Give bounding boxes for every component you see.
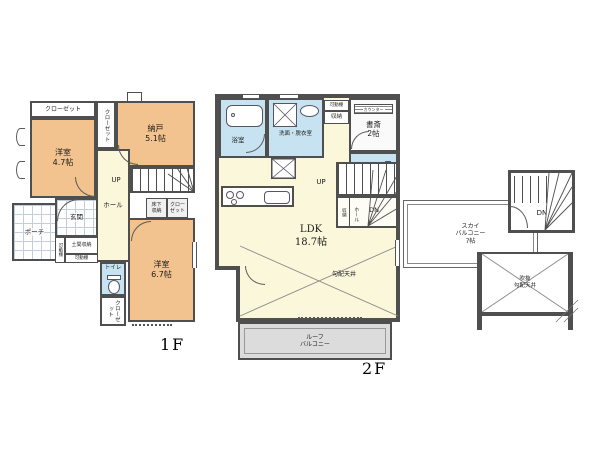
- porch: ポーチ: [12, 203, 57, 261]
- floor-plan-canvas: クローゼット クローゼット 洋室 4.7帖 納戸 5.1帖 ホール UP 床下 …: [0, 0, 600, 449]
- counter-label: カウンター: [363, 107, 385, 112]
- storage-2f-top: 収納: [324, 111, 349, 124]
- toilet-1f: トイレ: [100, 262, 126, 296]
- storage-2f-top-label: 収納: [331, 114, 342, 121]
- counter: カウンター: [354, 104, 393, 114]
- bedroom-4-7-label: 洋室 4.7帖: [53, 148, 74, 168]
- closet-1f-mid-label: クロー ゼット: [170, 202, 185, 215]
- roof-balcony-label: ルーフ バルコニー: [300, 334, 330, 349]
- storage-under-stairs-label: 収納: [341, 208, 347, 217]
- floor-2f-label: 2F: [362, 359, 387, 378]
- stove-burner-icon: [231, 199, 237, 205]
- stairs-2f-winder-icon: [368, 170, 398, 226]
- bathtub-drain-icon: [231, 113, 235, 117]
- closet-1f-top-label: クローゼット: [45, 106, 81, 114]
- doma-storage-label: 土間収納: [71, 242, 91, 248]
- hall-1f-label: ホール: [103, 201, 123, 209]
- sky-balcony-label: スカイ バルコニー 7帖: [456, 223, 486, 246]
- movable-shelf-2f-label: 可動棚: [330, 103, 344, 109]
- movable-shelf-bottom: 可動棚: [65, 254, 98, 263]
- underfloor-storage: 床下 収納: [146, 198, 167, 218]
- window-icon: [395, 240, 400, 266]
- up-1f-label: UP: [104, 176, 128, 185]
- movable-shelf-left: 可動棚: [55, 237, 65, 263]
- void-label: 吹抜 勾配天井: [514, 276, 536, 290]
- movable-shelf-2f: 可動棚: [324, 100, 349, 111]
- hall-1f: ホール: [96, 149, 130, 262]
- window-icon: [192, 242, 197, 268]
- window-icon: [280, 94, 298, 99]
- storage-x-icon: [271, 158, 296, 179]
- sloped-ceiling-label: 勾配天井: [318, 271, 370, 279]
- roof-balcony: ルーフ バルコニー: [238, 322, 392, 360]
- toilet-1f-bowl-icon: [108, 280, 120, 294]
- stove-burner-icon: [226, 191, 234, 199]
- movable-shelf-left-label: 可動棚: [57, 243, 63, 257]
- storeroom-5-1-label: 納戸 5.1帖: [145, 124, 166, 144]
- kitchen-counter: [221, 186, 294, 207]
- closet-1f-mid: クロー ゼット: [167, 198, 188, 218]
- washroom-label: 洗面・脱衣室: [269, 131, 322, 138]
- corner-hatch-icon: [556, 298, 578, 322]
- up-2f-label: UP: [309, 178, 333, 187]
- sliding-window-dotted-icon: [298, 317, 362, 319]
- movable-shelf-bottom-label: 可動棚: [75, 256, 89, 262]
- stairs-1f-winder-icon: [168, 168, 194, 192]
- hall-2f-label: ホール: [353, 201, 359, 227]
- bathroom: 浴室: [219, 98, 267, 158]
- window-arc-icon: [16, 128, 25, 146]
- void-wall-leg: [477, 314, 482, 330]
- closet-1f-bottom-label: クローゼット: [106, 298, 120, 324]
- window-arc-icon: [16, 161, 25, 179]
- bedroom-6-7-label: 洋室 6.7帖: [151, 260, 172, 280]
- underfloor-storage-label: 床下 収納: [151, 202, 161, 215]
- toilet-1f-label: トイレ: [102, 265, 124, 272]
- stove-burner-icon: [236, 191, 244, 199]
- kitchen-sink-icon: [264, 191, 290, 204]
- porch-label: ポーチ: [25, 228, 45, 236]
- storage-under-stairs: 収納: [338, 198, 350, 226]
- sink-icon: [300, 105, 319, 117]
- closet-1f-side: クローゼット: [96, 101, 116, 149]
- closet-1f-bottom: クローゼット: [100, 296, 126, 326]
- floor-1f-label: 1F: [160, 335, 185, 354]
- sliding-window-dotted-icon: [132, 324, 172, 326]
- closet-1f-top: クローゼット: [30, 101, 96, 118]
- closet-1f-side-label: クローゼット: [103, 109, 110, 142]
- stairs-sky-winder-icon: [545, 173, 572, 230]
- window-icon: [243, 94, 259, 99]
- washing-machine-icon: [273, 103, 297, 127]
- doma-storage: 土間収納: [65, 237, 98, 254]
